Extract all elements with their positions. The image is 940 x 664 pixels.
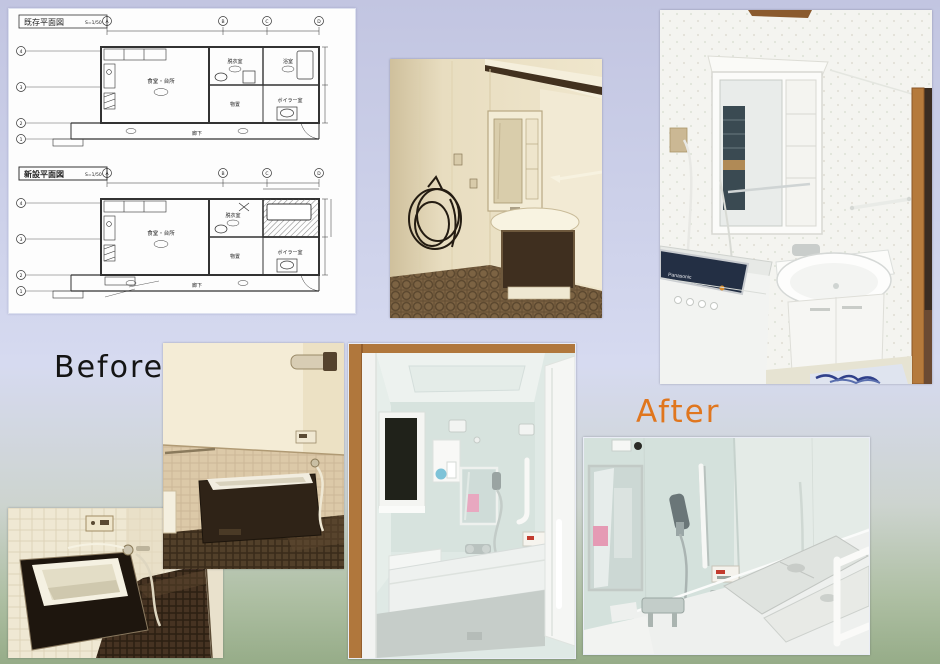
open-door bbox=[545, 356, 575, 646]
door-frame bbox=[912, 88, 924, 384]
wall-mirror bbox=[461, 468, 497, 524]
wall-socket bbox=[454, 154, 462, 165]
before-bathroom-art bbox=[163, 343, 344, 569]
pink-bucket-reflection bbox=[593, 526, 608, 546]
grid-row-2: 2 bbox=[20, 121, 23, 127]
existing-plan-walls bbox=[53, 47, 319, 146]
existing-plan-title: 既存平面図 bbox=[24, 17, 64, 27]
room-storage: 物置 bbox=[230, 101, 240, 108]
door-frame-top bbox=[349, 344, 575, 353]
room-dressing: 脱衣室 bbox=[225, 212, 240, 219]
window bbox=[379, 412, 425, 513]
stool bbox=[163, 491, 176, 533]
shower-head bbox=[492, 472, 501, 490]
grid-row-1: 1 bbox=[20, 289, 23, 295]
grid-col-b: B bbox=[221, 19, 224, 25]
existing-floor-plan: 既存平面図 S=1/50 A B C D bbox=[9, 9, 355, 159]
grid-col-a: A bbox=[105, 171, 109, 177]
slide-canvas: 既存平面図 S=1/50 A B C D bbox=[0, 0, 940, 664]
photo-before-washroom bbox=[390, 59, 602, 318]
photo-after-bathroom-tub bbox=[583, 437, 870, 655]
floor-plans-panel: 既存平面図 S=1/50 A B C D bbox=[8, 8, 356, 314]
new-kitchen-fixtures bbox=[104, 201, 166, 285]
new-floor-plan: 新設平面図 S=1/50 A B C D bbox=[9, 161, 355, 313]
grid-col-c: C bbox=[265, 19, 268, 25]
vanity bbox=[776, 244, 894, 372]
new-plan-scale: S=1/50 bbox=[85, 172, 102, 178]
grid-row-2: 2 bbox=[20, 273, 23, 279]
grid-col-a: A bbox=[105, 19, 109, 25]
grid-col-d: D bbox=[317, 171, 321, 177]
after-bathroom-art bbox=[349, 344, 575, 658]
control-panel bbox=[523, 532, 546, 546]
existing-plan-scale: S=1/50 bbox=[85, 20, 102, 26]
photo-before-bathroom-wide bbox=[163, 343, 344, 569]
vent bbox=[449, 420, 466, 432]
after-washroom-art: Panasonic bbox=[660, 10, 932, 384]
bath-stool bbox=[642, 598, 684, 613]
vent bbox=[519, 424, 534, 435]
grid-columns: A B C D bbox=[103, 169, 324, 190]
room-bath: 浴室 bbox=[283, 58, 293, 65]
grid-col-b: B bbox=[221, 171, 224, 177]
door-edge bbox=[362, 353, 376, 658]
room-boiler: ボイラー室 bbox=[277, 249, 302, 256]
drain bbox=[467, 632, 482, 640]
wall-mirror bbox=[589, 466, 642, 590]
room-dining-kitchen: 食堂・台所 bbox=[147, 229, 175, 237]
mirror-reflection-window bbox=[723, 106, 745, 210]
grid-rows: 4 3 2 1 bbox=[17, 47, 102, 144]
room-dressing: 脱衣室 bbox=[227, 58, 242, 65]
room-dining-kitchen: 食堂・台所 bbox=[147, 77, 175, 85]
grid-row-4: 4 bbox=[20, 201, 23, 207]
grid-row-1: 1 bbox=[20, 137, 23, 143]
grid-row-4: 4 bbox=[20, 49, 23, 55]
fixture-knob bbox=[634, 442, 642, 450]
old-cabinet bbox=[502, 231, 574, 289]
bath-faucet bbox=[311, 459, 319, 467]
room-corridor: 廊下 bbox=[192, 282, 202, 289]
grid-row-3: 3 bbox=[20, 85, 23, 91]
grid-rows: 4 3 2 1 bbox=[17, 199, 102, 296]
wall-fixture bbox=[612, 440, 631, 451]
grid-columns: A B C D bbox=[103, 17, 324, 36]
door-frame-left bbox=[349, 344, 362, 658]
after-label: After bbox=[636, 394, 720, 430]
grid-col-d: D bbox=[317, 19, 321, 25]
new-plan-walls bbox=[53, 199, 319, 298]
room-boiler: ボイラー室 bbox=[277, 97, 302, 104]
blue-cup bbox=[436, 469, 447, 480]
new-plan-title: 新設平面図 bbox=[24, 169, 64, 179]
existing-room-labels: 食堂・台所 脱衣室 浴室 物置 ボイラー室 廊下 bbox=[126, 58, 303, 137]
photo-after-washroom: Panasonic bbox=[660, 10, 932, 384]
before-washroom-art bbox=[390, 59, 602, 318]
old-tub bbox=[199, 473, 321, 543]
wall-switch bbox=[470, 179, 477, 188]
washing-machine: Panasonic bbox=[660, 246, 772, 384]
grid-col-c: C bbox=[265, 171, 268, 177]
before-label: Before bbox=[54, 350, 164, 385]
photo-after-bathroom-wide bbox=[348, 343, 576, 659]
after-tub-art bbox=[584, 438, 869, 654]
room-corridor: 廊下 bbox=[192, 130, 202, 137]
grid-row-3: 3 bbox=[20, 237, 23, 243]
pink-towel-reflection bbox=[466, 494, 479, 512]
room-storage: 物置 bbox=[230, 253, 240, 260]
